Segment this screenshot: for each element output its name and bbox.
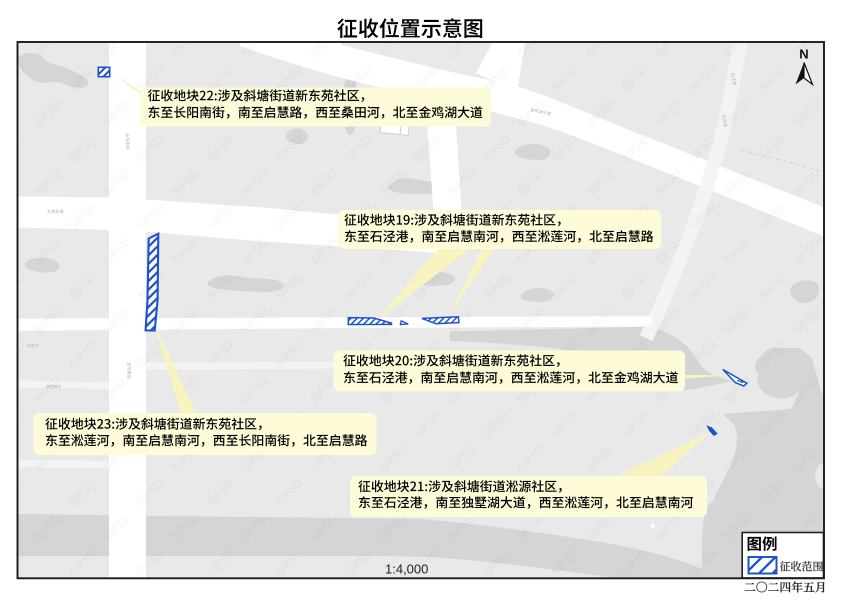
svg-text:N: N [799,47,808,62]
svg-text:SIPSD: SIPSD [826,201,841,232]
svg-text:SIPSD: SIPSD [826,271,841,302]
svg-text:SIPSD: SIPSD [826,339,841,370]
svg-text:SIPSD: SIPSD [826,477,841,508]
svg-text:SIPSD: SIPSD [826,133,841,164]
svg-text:SIPSD: SIPSD [826,547,841,578]
svg-text:SIPSD: SIPSD [826,409,841,440]
svg-text:SIPSD: SIPSD [826,63,841,94]
svg-text:1:4,000: 1:4,000 [385,562,428,577]
